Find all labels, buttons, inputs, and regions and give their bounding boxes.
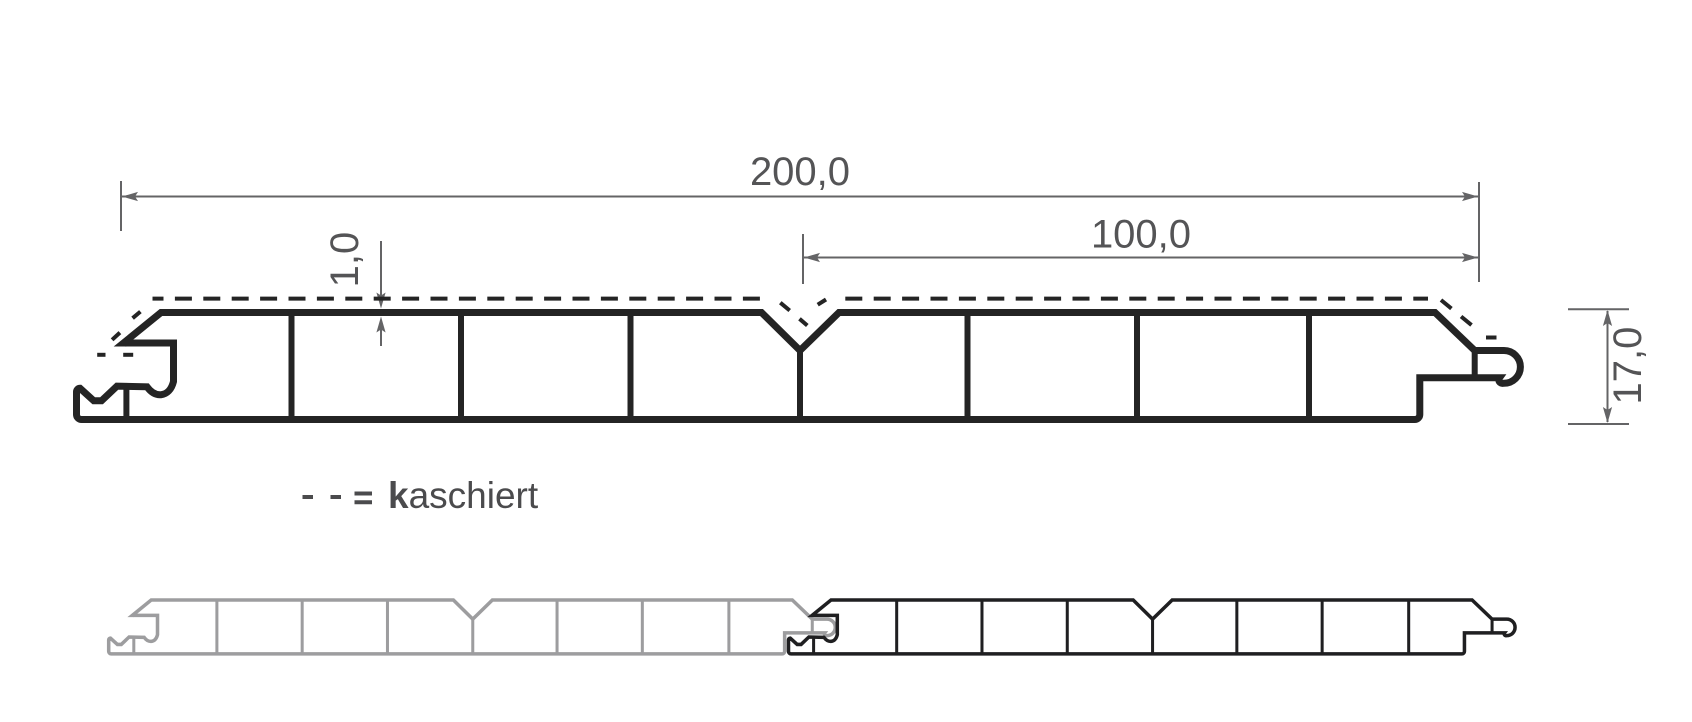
svg-text:200,0: 200,0	[750, 150, 850, 194]
svg-text:100,0: 100,0	[1091, 213, 1191, 257]
svg-text:17,0: 17,0	[1606, 327, 1650, 405]
svg-text:kaschiert: kaschiert	[388, 475, 539, 516]
svg-text:1,0: 1,0	[323, 232, 367, 288]
